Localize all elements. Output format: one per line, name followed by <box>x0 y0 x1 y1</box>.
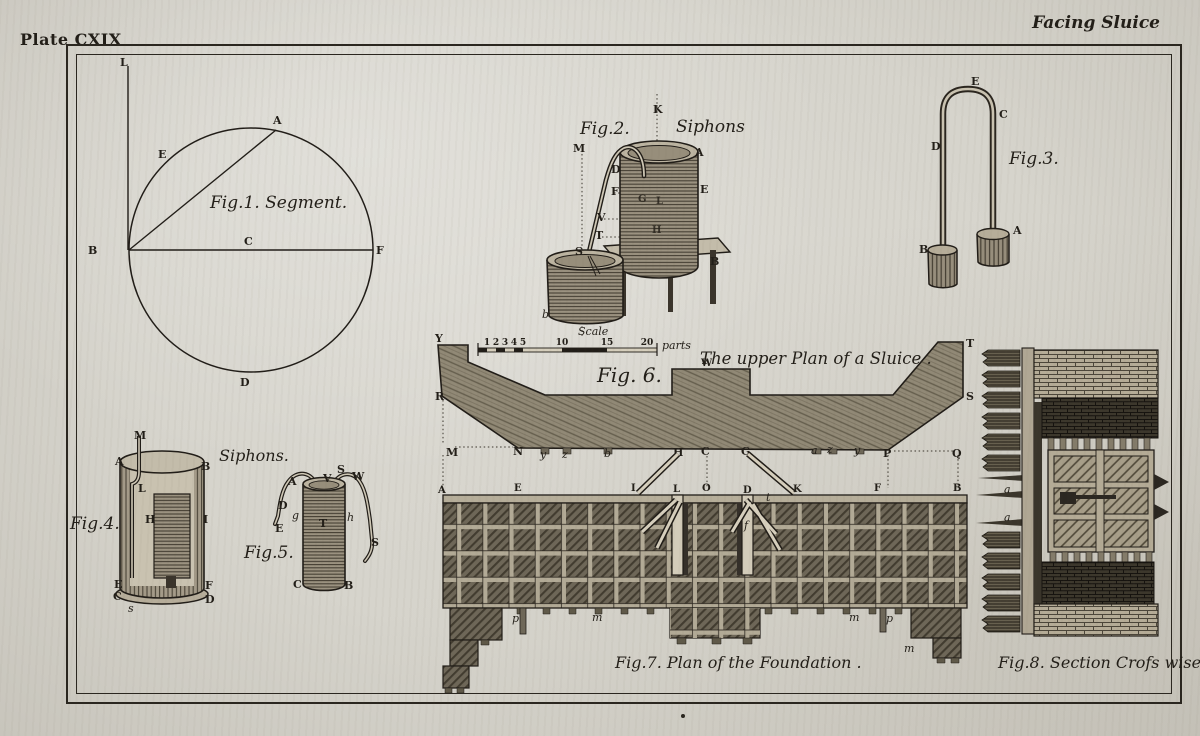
fig7-caption: Fig.7. Plan of the Foundation . <box>614 653 862 672</box>
fig7-label-p1: p <box>512 612 519 625</box>
fig4-label-M: M <box>134 429 146 442</box>
fig8-light-brick-bottom <box>1034 604 1158 636</box>
fig7-label-t: t <box>766 491 771 504</box>
fig8-pile-stack <box>976 350 1024 632</box>
fig5-label-g: g <box>292 509 299 522</box>
fig7-label-m1: m <box>592 611 602 624</box>
fig1-label-B: B <box>88 244 97 257</box>
fig7-right-step-2 <box>933 638 961 658</box>
fig6-label-Y: Y <box>434 332 443 345</box>
fig3-right-cup-rim <box>977 229 1009 240</box>
fig8-label-a1: a <box>1004 483 1011 496</box>
fig6-label-b: b <box>604 447 611 460</box>
fig7-left-step-2 <box>450 640 478 666</box>
fig3-label-A: A <box>1012 224 1022 237</box>
fig6-scale-tick-4: 4 <box>511 338 517 348</box>
fig2-label-L: L <box>656 196 663 207</box>
fig6-label-S: S <box>966 390 974 403</box>
fig4-label-L: L <box>138 482 146 495</box>
fig8-stake <box>978 475 1024 481</box>
fig6-scale-tick-1: 1 <box>484 338 490 348</box>
fig8-slot <box>1060 492 1076 504</box>
fig4-label-s: s <box>128 602 134 615</box>
fig4-caption: Fig.4. <box>69 514 120 534</box>
fig5-label-A: A <box>287 475 297 488</box>
fig2-label-D: D <box>611 163 621 176</box>
fig8-stake <box>976 519 1024 526</box>
fig5-siphon-diagram: A V S W D g E T h S C B Fig.5. <box>238 458 396 608</box>
fig7-label-K: K <box>793 484 802 495</box>
engraved-plate: Plate CXIX Facing Sluice L E A B C F D F… <box>0 0 1200 736</box>
fig6-label-z1: z <box>561 448 568 461</box>
fig7-label-p2: p <box>886 612 893 625</box>
fig6-scale-label: Scale <box>578 325 609 338</box>
fig2-label-F: F <box>611 185 619 198</box>
page-mark-dot <box>681 714 685 718</box>
fig2-title: Siphons <box>676 117 745 137</box>
fig7-left-step-1 <box>450 608 502 640</box>
plate-heading: Facing Sluice <box>990 13 1160 33</box>
fig2-large-bucket-body <box>620 152 698 278</box>
fig2-label-V: V <box>596 211 606 224</box>
fig4-label-I: I <box>203 513 208 526</box>
fig2-label-E: E <box>700 183 708 196</box>
fig4-label-A: A <box>114 455 124 468</box>
fig7-right-step-feet <box>937 658 959 663</box>
fig8-dark-brick-band <box>1042 398 1158 438</box>
fig3-label-B: B <box>919 243 928 256</box>
fig4-spigot <box>166 576 176 588</box>
fig5-label-S-top: S <box>337 463 345 476</box>
fig1-label-E: E <box>158 148 166 161</box>
fig5-label-T: T <box>319 517 328 530</box>
fig6-scale-unit: parts <box>662 339 691 352</box>
fig2-caption: Fig.2. <box>579 119 630 139</box>
fig6-label-z2: z <box>826 443 833 456</box>
fig6-scale-tick-15: 15 <box>601 338 614 348</box>
fig7-right-step-1 <box>911 608 961 638</box>
fig4-siphon-diagram: M A B L H I E F C D s Fig.4. <box>62 428 230 622</box>
fig4-label-F: F <box>205 579 213 592</box>
fig6-label-y2: y <box>853 444 861 457</box>
fig3-siphon-diagram: E C D A B Fig.3. <box>905 72 1070 302</box>
fig2-label-K: K <box>653 103 663 116</box>
fig6-label-Q: Q <box>952 447 962 460</box>
fig3-left-cup-rim <box>928 245 957 255</box>
fig5-label-V: V <box>322 472 332 485</box>
fig7-label-D: D <box>743 485 752 496</box>
fig8-center-stud <box>1096 450 1104 552</box>
fig5-label-B: B <box>344 579 353 592</box>
fig6-label-M: M <box>446 446 458 459</box>
fig3-caption: Fig.3. <box>1008 149 1059 169</box>
fig8-right-chevron <box>1154 474 1169 490</box>
fig6-scale-tick-20: 20 <box>641 338 654 348</box>
fig7-label-m2: m <box>849 611 859 624</box>
fig4-label-D: D <box>205 593 215 606</box>
fig5-label-h: h <box>347 511 354 524</box>
fig6-scale-seg <box>562 348 607 352</box>
fig5-label-E: E <box>275 522 283 535</box>
fig2-label-S: S <box>575 245 583 258</box>
fig2-label-G: G <box>638 194 647 205</box>
fig8-light-brick-top <box>1034 350 1158 398</box>
fig7-label-E: E <box>514 483 522 494</box>
fig1-label-C: C <box>244 235 253 248</box>
fig4-inner-vessel <box>154 494 190 578</box>
fig7-left-step-3 <box>443 666 469 688</box>
fig6-scale-seg <box>478 348 487 352</box>
fig2-label-A: A <box>694 146 704 159</box>
fig7-label-L: L <box>673 484 680 495</box>
fig7-label-m3: m <box>904 642 914 655</box>
fig6-label-a: a <box>811 444 818 457</box>
fig1-label-D: D <box>240 376 250 389</box>
fig5-cylinder-body <box>303 484 345 591</box>
fig1-label-A: A <box>272 114 282 127</box>
fig6-caption: Fig. 6. <box>596 363 662 387</box>
fig8-stud-course-upper <box>1048 438 1150 450</box>
fig6-label-T: T <box>966 337 975 350</box>
fig7-grid-lines <box>443 503 967 608</box>
fig5-caption: Fig.5. <box>243 543 294 563</box>
fig3-label-C: C <box>999 108 1008 121</box>
fig7-gate-post-shadow <box>683 503 688 575</box>
fig4-label-H: H <box>145 513 155 526</box>
fig7-label-I: I <box>631 483 636 494</box>
fig4-label-C: C <box>113 590 122 603</box>
fig2-label-B: B <box>710 255 719 268</box>
fig7-label-B: B <box>953 483 961 494</box>
fig1-caption: Fig.1. Segment. <box>209 193 347 213</box>
fig4-cylinder-rim <box>120 451 204 473</box>
fig1-label-F: F <box>376 244 384 257</box>
fig6-scale-tick-10: 10 <box>556 338 569 348</box>
fig1-chord <box>129 130 276 250</box>
fig7-center-block-lines <box>670 608 760 638</box>
fig6-label-y1: y <box>539 448 547 461</box>
fig7-label-O: O <box>702 483 711 494</box>
fig6-fig7-sluice-plan: Scale 1 2 3 4 5 10 15 20 parts Y R M N y… <box>435 318 980 694</box>
fig6-scale-tick-5: 5 <box>520 338 526 348</box>
fig8-caption: Fig.8. Section Crofs wise <box>997 653 1200 672</box>
fig3-label-E: E <box>971 75 979 88</box>
fig1-segment-diagram: L E A B C F D Fig.1. Segment. <box>70 50 450 398</box>
fig3-label-D: D <box>931 140 941 153</box>
fig8-right-chevron <box>1154 504 1169 520</box>
fig5-label-D: D <box>278 499 288 512</box>
fig6-title: The upper Plan of a Sluice . <box>700 349 932 368</box>
fig2-label-H: H <box>652 225 661 236</box>
fig2-small-bucket-water <box>555 255 615 268</box>
fig7-label-F: F <box>874 483 881 494</box>
fig6-scale-seg <box>514 348 523 352</box>
fig6-scale-tick-2: 2 <box>493 338 499 348</box>
fig7-label-A: A <box>437 485 446 496</box>
fig1-label-L: L <box>120 56 128 69</box>
fig6-label-C: C <box>701 445 710 458</box>
fig7-center-block-feet <box>677 638 752 644</box>
fig6-label-N: N <box>513 445 523 458</box>
fig6-label-P: P <box>883 447 891 460</box>
fig8-stud-course-lower <box>1050 552 1152 562</box>
fig7-top-plank <box>443 495 967 503</box>
fig8-vertical-plank <box>1022 348 1034 634</box>
fig2-label-M: M <box>573 142 585 155</box>
fig8-label-a2: a <box>1004 511 1011 524</box>
fig8-dark-upright <box>1034 402 1042 634</box>
fig6-scale-tick-3: 3 <box>502 338 508 348</box>
fig6-label-R: R <box>435 390 445 403</box>
fig7-post-p1 <box>520 608 526 634</box>
fig5-label-W: W <box>351 470 365 483</box>
fig2-siphons-diagram: K M A E D F V T S B b G L H Fig.2. Sipho… <box>540 88 745 340</box>
fig5-label-C: C <box>293 578 302 591</box>
fig8-stake <box>976 491 1024 498</box>
fig4-label-B: B <box>201 460 210 473</box>
fig8-section-diagram: a a Fig.8. Section Crofs wise <box>976 342 1172 684</box>
fig8-dark-brick-lower <box>1042 562 1154 604</box>
fig6-scale-seg <box>496 348 505 352</box>
fig2-label-T: T <box>595 229 604 242</box>
fig5-label-S-right: S <box>371 536 379 549</box>
